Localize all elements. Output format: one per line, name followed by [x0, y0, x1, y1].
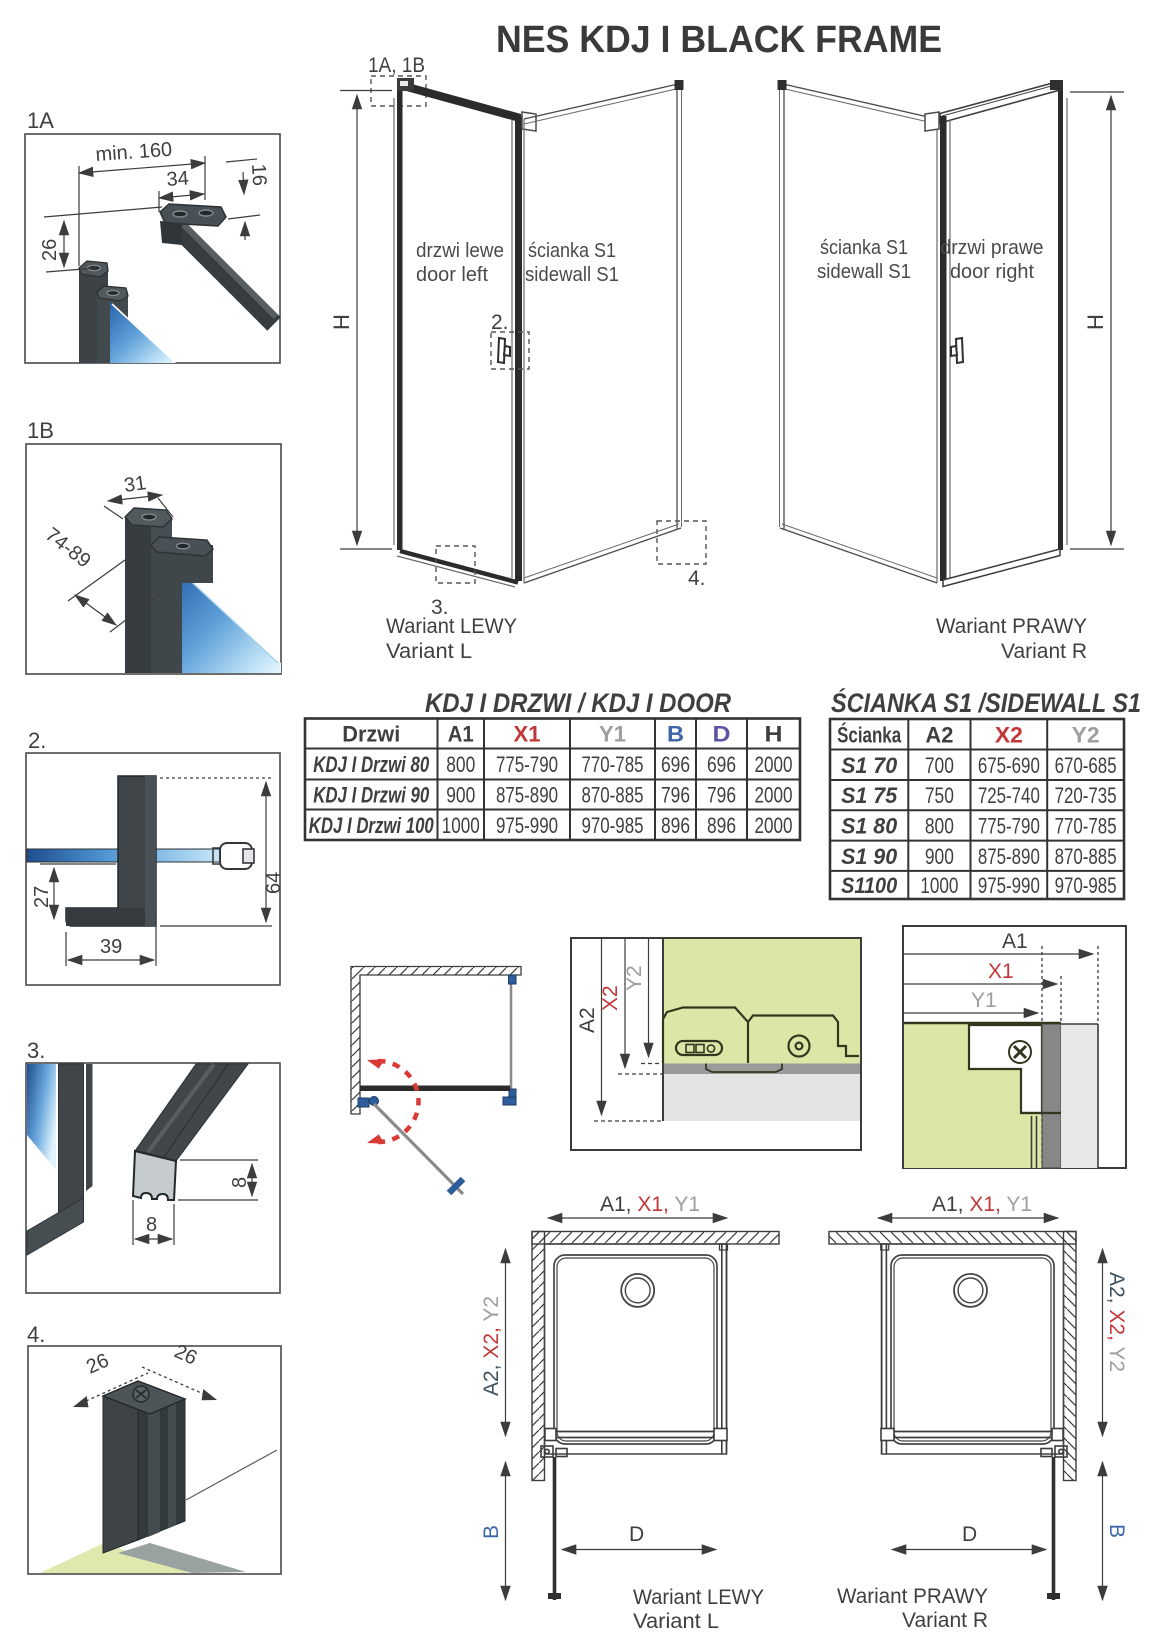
- svg-text:H: H: [329, 314, 354, 330]
- svg-text:16: 16: [247, 163, 270, 186]
- svg-text:X2: X2: [995, 722, 1023, 747]
- svg-text:2000: 2000: [755, 813, 793, 838]
- svg-text:Y2: Y2: [623, 965, 646, 991]
- svg-text:B: B: [1105, 1524, 1128, 1538]
- svg-text:1A: 1A: [27, 108, 54, 133]
- svg-text:796: 796: [707, 783, 736, 808]
- svg-text:Variant L: Variant L: [633, 1610, 719, 1633]
- svg-text:ścianka S1: ścianka S1: [528, 240, 616, 262]
- svg-text:875-890: 875-890: [496, 783, 558, 808]
- svg-text:door left: door left: [416, 264, 488, 286]
- svg-text:8: 8: [146, 1214, 157, 1236]
- svg-text:Wariant LEWY: Wariant LEWY: [386, 615, 517, 638]
- svg-text:870-885: 870-885: [1055, 844, 1117, 869]
- svg-text:KDJ I Drzwi 90: KDJ I Drzwi 90: [313, 783, 430, 808]
- svg-text:Drzwi: Drzwi: [342, 722, 400, 747]
- svg-text:Y2: Y2: [1072, 722, 1100, 747]
- svg-text:770-785: 770-785: [582, 752, 644, 777]
- svg-text:Y1: Y1: [599, 722, 626, 747]
- svg-text:S1 80: S1 80: [841, 813, 898, 838]
- svg-text:975-990: 975-990: [496, 813, 558, 838]
- svg-text:A1: A1: [448, 722, 474, 747]
- svg-text:970-985: 970-985: [1055, 873, 1117, 898]
- svg-text:A2, X2, Y2: A2, X2, Y2: [480, 1296, 503, 1396]
- svg-text:670-685: 670-685: [1055, 753, 1117, 778]
- svg-text:775-790: 775-790: [496, 752, 558, 777]
- svg-text:A2: A2: [925, 722, 953, 747]
- svg-text:D: D: [629, 1523, 644, 1546]
- svg-text:725-740: 725-740: [978, 783, 1040, 808]
- svg-text:700: 700: [925, 753, 954, 778]
- svg-text:B: B: [667, 722, 684, 747]
- svg-text:sidewall S1: sidewall S1: [817, 261, 911, 283]
- svg-text:Wariant PRAWY: Wariant PRAWY: [936, 615, 1087, 638]
- svg-text:1A, 1B: 1A, 1B: [368, 54, 425, 77]
- svg-text:1B: 1B: [27, 418, 54, 443]
- svg-text:D: D: [713, 722, 731, 747]
- svg-text:675-690: 675-690: [978, 753, 1040, 778]
- svg-text:Y1: Y1: [971, 989, 997, 1012]
- svg-text:Variant R: Variant R: [1001, 640, 1087, 663]
- svg-text:4.: 4.: [27, 1322, 45, 1347]
- svg-text:31: 31: [123, 472, 148, 497]
- svg-text:NES KDJ I BLACK FRAME: NES KDJ I BLACK FRAME: [496, 19, 942, 61]
- svg-text:S1 75: S1 75: [841, 783, 898, 808]
- svg-text:X1: X1: [514, 722, 541, 747]
- svg-text:1000: 1000: [920, 873, 958, 898]
- svg-text:H: H: [1083, 314, 1108, 330]
- svg-text:875-890: 875-890: [978, 844, 1040, 869]
- svg-text:X1: X1: [988, 960, 1014, 983]
- svg-text:H: H: [765, 722, 783, 747]
- svg-text:S1 70: S1 70: [841, 753, 898, 778]
- svg-text:27: 27: [31, 886, 53, 908]
- svg-text:750: 750: [925, 783, 954, 808]
- svg-text:896: 896: [707, 813, 736, 838]
- svg-text:Wariant PRAWY: Wariant PRAWY: [837, 1585, 988, 1608]
- svg-text:Ścianka: Ścianka: [837, 722, 902, 747]
- svg-text:975-990: 975-990: [978, 873, 1040, 898]
- svg-text:696: 696: [707, 752, 736, 777]
- svg-text:B: B: [480, 1525, 503, 1539]
- svg-text:KDJ I DRZWI / KDJ I DOOR: KDJ I DRZWI / KDJ I DOOR: [425, 688, 731, 718]
- svg-text:A1: A1: [1002, 930, 1028, 953]
- svg-text:A2: A2: [576, 1007, 599, 1033]
- svg-text:896: 896: [661, 813, 690, 838]
- svg-text:34: 34: [166, 167, 190, 190]
- svg-text:Wariant LEWY: Wariant LEWY: [633, 1586, 764, 1609]
- svg-text:S1 90: S1 90: [841, 844, 898, 869]
- svg-text:870-885: 870-885: [582, 783, 644, 808]
- svg-text:S1100: S1100: [841, 873, 898, 898]
- svg-text:696: 696: [661, 752, 690, 777]
- svg-text:A2, X2, Y2: A2, X2, Y2: [1105, 1272, 1128, 1372]
- svg-text:8: 8: [229, 1177, 251, 1188]
- svg-text:Variant L: Variant L: [386, 640, 472, 663]
- svg-text:26: 26: [39, 239, 61, 261]
- svg-text:X2: X2: [599, 985, 622, 1011]
- svg-text:800: 800: [925, 813, 954, 838]
- svg-text:A1, X1, Y1: A1, X1, Y1: [932, 1193, 1032, 1216]
- svg-text:D: D: [962, 1523, 977, 1546]
- svg-text:A1, X1, Y1: A1, X1, Y1: [600, 1193, 700, 1216]
- svg-text:3.: 3.: [27, 1038, 45, 1063]
- svg-text:ścianka S1: ścianka S1: [820, 237, 908, 259]
- svg-text:Variant R: Variant R: [902, 1609, 988, 1632]
- svg-text:770-785: 770-785: [1055, 813, 1117, 838]
- svg-text:970-985: 970-985: [582, 813, 644, 838]
- svg-text:2000: 2000: [755, 752, 793, 777]
- svg-text:2.: 2.: [28, 728, 46, 753]
- svg-text:775-790: 775-790: [978, 813, 1040, 838]
- svg-text:2000: 2000: [755, 783, 793, 808]
- svg-text:720-735: 720-735: [1055, 783, 1117, 808]
- svg-text:drzwi prawe: drzwi prawe: [941, 237, 1044, 259]
- svg-text:4.: 4.: [688, 567, 706, 590]
- svg-text:KDJ I Drzwi 100: KDJ I Drzwi 100: [309, 813, 435, 838]
- svg-text:39: 39: [100, 936, 122, 958]
- svg-text:KDJ I Drzwi 80: KDJ I Drzwi 80: [313, 752, 430, 777]
- svg-text:800: 800: [446, 752, 475, 777]
- svg-text:2.: 2.: [491, 311, 509, 334]
- svg-text:796: 796: [661, 783, 690, 808]
- svg-text:sidewall S1: sidewall S1: [525, 264, 619, 286]
- svg-text:900: 900: [446, 783, 475, 808]
- svg-text:door right: door right: [950, 261, 1034, 283]
- svg-text:ŚCIANKA S1 /SIDEWALL S1: ŚCIANKA S1 /SIDEWALL S1: [831, 687, 1141, 718]
- svg-text:1000: 1000: [442, 813, 480, 838]
- svg-text:900: 900: [925, 844, 954, 869]
- svg-text:drzwi lewe: drzwi lewe: [416, 240, 504, 262]
